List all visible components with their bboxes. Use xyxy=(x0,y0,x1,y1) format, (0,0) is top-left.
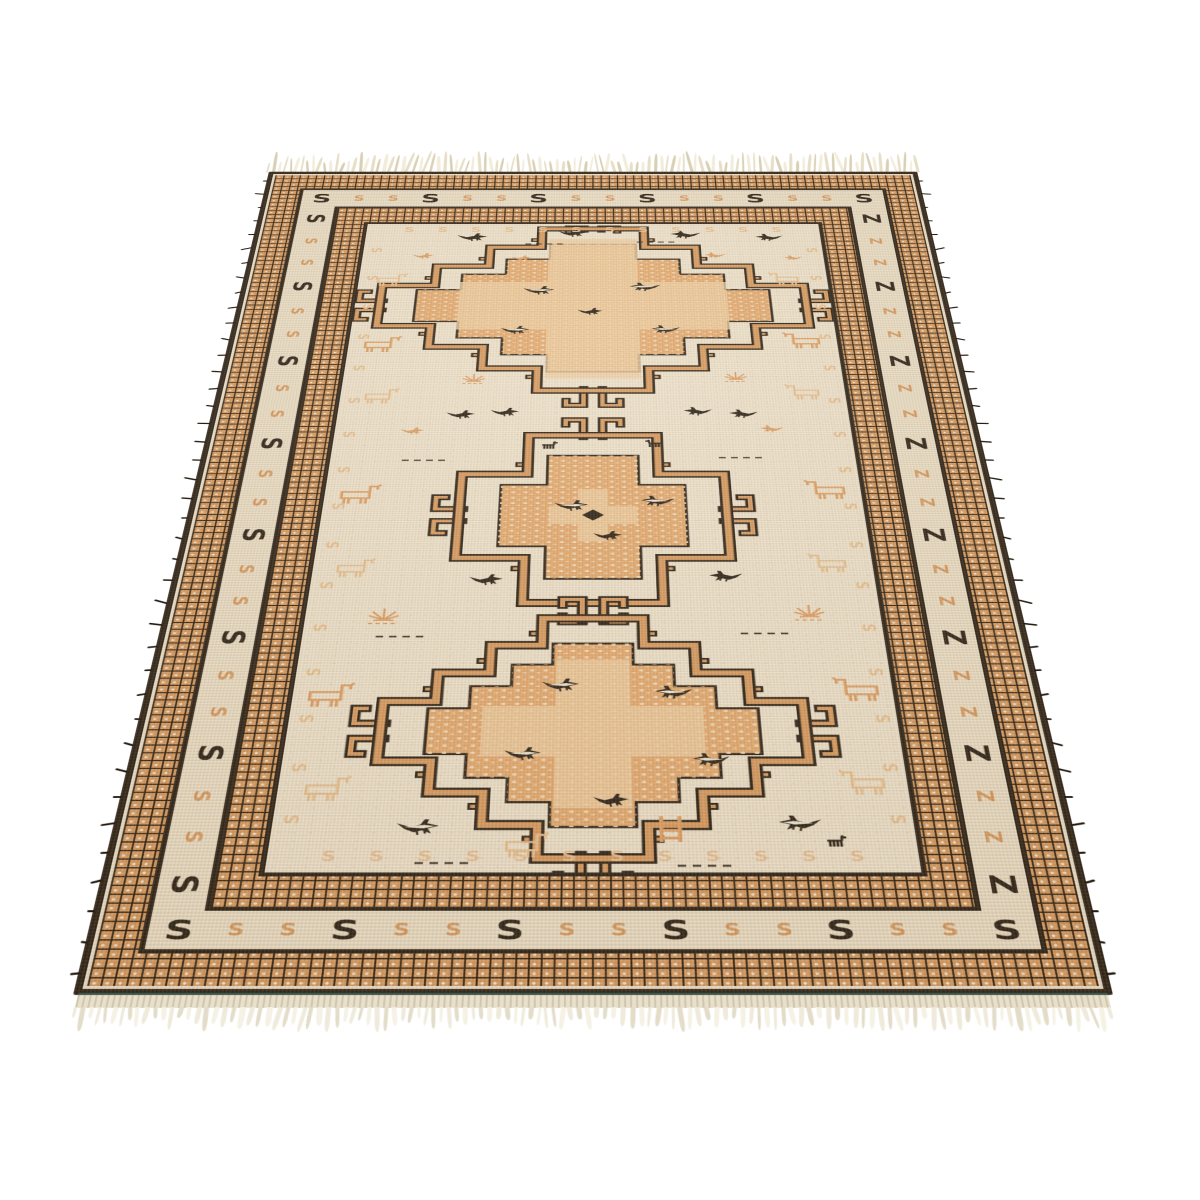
fringe-strand xyxy=(647,1007,652,1027)
s-motif-small: Z xyxy=(935,596,957,606)
fringe-strand xyxy=(903,152,906,173)
fringe-strand xyxy=(343,1007,349,1022)
fringe-strand xyxy=(814,153,817,172)
fringe-strand xyxy=(375,1007,380,1032)
fringe-strand xyxy=(407,1007,414,1024)
fringe-strand xyxy=(346,160,350,172)
bird-motif xyxy=(709,571,743,582)
fringe-strand xyxy=(365,1007,372,1026)
fringe-strand xyxy=(471,156,475,173)
fringe-strand xyxy=(479,1007,484,1020)
s-motif-large: S xyxy=(215,630,249,646)
fringe-strand xyxy=(1057,1007,1064,1019)
fringe-strand xyxy=(422,151,433,172)
fringe-strand xyxy=(1081,1007,1091,1022)
s-motif-small: Z xyxy=(981,831,1006,844)
s-motif-small: S xyxy=(206,706,229,717)
s-motif-large: S xyxy=(495,917,525,943)
fringe-strand xyxy=(712,154,716,172)
fringe-strand xyxy=(764,1007,771,1028)
fringe-strand xyxy=(471,1007,475,1020)
s-motif-small: S xyxy=(288,308,306,315)
fringe-strand xyxy=(358,1007,365,1021)
fringe-strand xyxy=(549,161,553,172)
fringe-strand xyxy=(913,155,920,172)
fringe-strand xyxy=(621,153,629,172)
fringe-strand xyxy=(255,1007,264,1027)
fringe-strand xyxy=(736,157,741,172)
horse-motif xyxy=(804,480,845,499)
rug-outer-edge: SSSSSSSSSSSSSSSS SSSSSSSSSSSSSSSS SSSSSS… xyxy=(73,172,1113,995)
s-motif-small: S xyxy=(888,921,907,938)
fringe-strand xyxy=(495,160,499,173)
fringe-strand xyxy=(654,154,658,173)
fringe-strand xyxy=(714,1007,720,1028)
fringe-strand xyxy=(537,1007,543,1025)
fringe-strand xyxy=(660,155,664,172)
s-motif-small: S xyxy=(267,410,286,418)
horse-motif xyxy=(365,388,400,403)
plant-motif xyxy=(724,372,747,382)
s-motif-large: S xyxy=(256,437,286,450)
horse-motif xyxy=(308,683,354,707)
fringe-strand xyxy=(589,156,594,172)
bird-motif xyxy=(704,253,726,259)
s-motif-small: Z xyxy=(885,331,903,338)
border-line-3: SSSSSSSSSSSS SSSSSSSSSSSS SSSSSSSSSSSSSS… xyxy=(258,222,928,876)
fringe-strand xyxy=(604,153,610,172)
fringe-strand xyxy=(437,156,441,173)
fringe-strand xyxy=(283,156,290,172)
bird-motif xyxy=(469,574,503,585)
fringe-strand xyxy=(538,156,542,172)
fringe-strand xyxy=(555,159,558,172)
fringe-strand xyxy=(514,1007,518,1024)
fringe-strand xyxy=(567,1007,574,1021)
fringe-strand xyxy=(774,156,783,172)
fringe-strand xyxy=(694,153,697,172)
fringe-strand xyxy=(683,153,685,172)
fringe-strand xyxy=(1066,1007,1073,1026)
rug-bottom-selvedge xyxy=(75,993,1111,1008)
horse-motif xyxy=(783,333,820,349)
s-motif-small: S xyxy=(679,195,690,202)
fringe-strand xyxy=(446,1007,451,1029)
fringe-strand xyxy=(186,1007,193,1020)
fringe-strand xyxy=(694,1007,702,1026)
s-motif-large: Z xyxy=(885,355,914,366)
fringe-strand xyxy=(496,1007,502,1019)
fringe-strand xyxy=(753,152,756,172)
fringe-strand xyxy=(488,156,494,172)
fringe-strand xyxy=(401,156,407,173)
fringe-strand xyxy=(561,161,565,172)
fringe-strand xyxy=(290,158,292,172)
fringe-strand xyxy=(335,1007,339,1028)
fringe-strand xyxy=(672,1007,675,1029)
bird-motif xyxy=(457,233,488,241)
fringe-strand xyxy=(685,151,694,172)
fringe-strand xyxy=(1000,1007,1003,1021)
s-motif-small: Z xyxy=(929,564,950,574)
fringe-strand xyxy=(370,155,376,172)
s-motif-small: Z xyxy=(880,308,898,315)
fringe-strand xyxy=(861,152,865,173)
fringe-strand xyxy=(796,161,800,173)
fringe-strand xyxy=(382,154,389,173)
fringe-strand xyxy=(913,1007,918,1028)
fringe-strand xyxy=(522,159,525,172)
s-motif-small: Z xyxy=(950,670,973,681)
bird-motif xyxy=(490,408,519,416)
fringe-strand xyxy=(845,1007,850,1025)
s-motif-small: S xyxy=(214,670,237,681)
s-motif-row-bottom: SSSSSSSSSSSSSSSS xyxy=(145,911,1042,949)
inner-chain-border: SSSSSSSSSSSS SSSSSSSSSSSS SSSSSSSSSSSSSS… xyxy=(211,208,975,906)
s-motif-small: Z xyxy=(867,238,884,244)
fringe-strand xyxy=(477,151,482,172)
fringe-strand xyxy=(109,1007,119,1024)
fringe-strand xyxy=(983,1007,990,1028)
bird-motif xyxy=(670,231,700,239)
s-motif-small: Z xyxy=(895,384,914,392)
fringe-strand xyxy=(229,1007,237,1022)
fringe-strand xyxy=(349,1007,358,1024)
fringe-strand xyxy=(905,1007,909,1025)
plant-motif xyxy=(462,374,485,384)
fringe-strand xyxy=(757,1007,761,1031)
fringe-strand xyxy=(417,1007,421,1019)
fringe-strand xyxy=(264,1007,272,1026)
fringe-strand xyxy=(630,1007,636,1028)
bird-motif xyxy=(778,816,822,831)
s-motif-small: S xyxy=(496,195,507,202)
s-motif-small: S xyxy=(605,195,616,202)
fringe-strand xyxy=(584,161,588,172)
fringe-strand xyxy=(1099,1007,1107,1031)
fringe-strand xyxy=(443,151,448,172)
s-motif-large: Z xyxy=(858,214,884,223)
fringe-strand xyxy=(88,1007,95,1019)
fringe-strand xyxy=(677,1007,686,1032)
rug-top-fringe xyxy=(266,150,920,173)
s-motif-small: Z xyxy=(973,790,997,802)
fringe-strand xyxy=(704,1007,712,1020)
fringe-strand xyxy=(305,1007,314,1030)
fringe-strand xyxy=(423,1007,430,1025)
fringe-strand xyxy=(312,155,315,173)
fringe-strand xyxy=(816,1007,822,1019)
fringe-strand xyxy=(176,1007,185,1018)
fringe-strand xyxy=(578,156,583,173)
fringe-strand xyxy=(897,154,902,172)
fringe-strand xyxy=(376,159,382,173)
fringe-strand xyxy=(510,156,516,172)
fringe-strand xyxy=(781,1007,787,1026)
s-motif-small: S xyxy=(392,921,410,938)
fringe-strand xyxy=(400,1007,405,1021)
fringe-strand xyxy=(429,153,437,173)
fringe-strand xyxy=(359,152,363,173)
fringe-strand xyxy=(306,160,309,172)
fringe-strand xyxy=(788,1007,797,1025)
border-line-1: SSSSSSSSSSSSSSSS SSSSSSSSSSSSSSSS SSSSSS… xyxy=(138,188,1048,953)
edge-fray-thread xyxy=(975,423,989,425)
s-motif-large: Z xyxy=(958,744,994,762)
fringe-strand xyxy=(412,155,420,173)
fringe-strand xyxy=(141,1007,152,1024)
fringe-strand xyxy=(647,156,651,173)
fringe-strand xyxy=(687,1007,692,1029)
fringe-strand xyxy=(432,1007,436,1029)
horse-motif xyxy=(364,336,401,352)
fringe-strand xyxy=(487,1007,492,1022)
fringe-strand xyxy=(1015,1007,1025,1031)
bird-motif xyxy=(755,234,783,241)
fringe-strand xyxy=(363,157,371,172)
s-motif-large: Z xyxy=(917,528,949,542)
fringe-strand xyxy=(818,154,823,173)
s-motif-large: Z xyxy=(900,437,930,450)
fringe-strand xyxy=(620,1007,626,1026)
fringe-strand xyxy=(594,1007,599,1018)
fringe-strand xyxy=(387,156,396,172)
fringe-strand xyxy=(161,1007,167,1020)
bird-motif xyxy=(784,255,803,260)
s-motif-large: S xyxy=(420,193,440,204)
s-motif-large: S xyxy=(853,193,874,204)
fringe-strand xyxy=(296,1007,307,1032)
fringe-strand xyxy=(574,157,577,172)
s-motif-small: S xyxy=(272,384,291,392)
s-motif-small: S xyxy=(249,498,269,507)
s-motif-large: S xyxy=(329,917,361,943)
fringe-strand xyxy=(405,152,416,172)
s-motif-small: S xyxy=(713,195,725,202)
s-motif-small: S xyxy=(353,195,365,202)
horse-motif xyxy=(785,385,820,400)
fringe-strand xyxy=(878,152,883,172)
fringe-strand xyxy=(910,160,913,172)
fringe-strand xyxy=(293,157,301,172)
fringe-strand xyxy=(824,152,831,173)
plant-motif xyxy=(368,609,399,624)
s-motif-border: SSSSSSSSSSSSSSSS SSSSSSSSSSSSSSSS SSSSSS… xyxy=(145,190,1042,949)
s-motif-small: S xyxy=(611,921,628,938)
bird-motif xyxy=(412,253,434,259)
fringe-strand xyxy=(663,1007,668,1025)
s-motif-large: S xyxy=(237,528,269,542)
fringe-strand xyxy=(844,157,847,173)
s-motif-large: S xyxy=(162,917,196,943)
fringe-strand xyxy=(193,1007,202,1024)
s-motif-small: S xyxy=(283,331,301,338)
fringe-strand xyxy=(748,1007,754,1024)
fringe-strand xyxy=(610,160,617,172)
s-motif-large: Z xyxy=(937,630,971,646)
fringe-strand xyxy=(789,153,792,172)
s-motif-large: S xyxy=(745,193,765,204)
fringe-strand xyxy=(865,153,873,173)
fringe-strand xyxy=(71,1007,77,1018)
fringe-strand xyxy=(931,1007,937,1031)
s-motif-small: Z xyxy=(957,706,980,717)
fringe-strand xyxy=(731,1007,736,1019)
s-motif-small: S xyxy=(255,469,275,477)
fringe-strand xyxy=(520,1007,526,1026)
fringe-strand xyxy=(598,154,605,172)
fringe-strand xyxy=(1006,1007,1014,1027)
fringe-strand xyxy=(611,1007,617,1019)
rug-bottom-fringe xyxy=(68,1007,1119,1035)
fringe-strand xyxy=(77,1007,86,1031)
fringe-strand xyxy=(835,1007,841,1020)
fringe-strand xyxy=(740,1007,745,1028)
fringe-strand xyxy=(826,1007,832,1029)
bird-motif xyxy=(396,819,440,834)
fringe-strand xyxy=(888,1007,893,1030)
s-motif-small: S xyxy=(229,596,251,606)
fringe-strand xyxy=(335,153,340,172)
s-motif-small: S xyxy=(181,831,206,844)
fringe-strand xyxy=(654,1007,661,1027)
outer-chain-border: SSSSSSSSSSSSSSSS SSSSSSSSSSSSSSSS SSSSSS… xyxy=(87,175,1099,986)
s-motif-small: S xyxy=(462,195,474,202)
rug: SSSSSSSSSSSSSSSS SSSSSSSSSSSSSSSS SSSSSS… xyxy=(73,172,1113,995)
fringe-strand xyxy=(394,155,401,173)
fringe-strand xyxy=(391,1007,397,1025)
fringe-strand xyxy=(219,1007,227,1027)
fringe-strand xyxy=(677,157,681,173)
fringe-strand xyxy=(762,156,771,172)
fringe-strand xyxy=(94,1007,102,1026)
fringe-strand xyxy=(458,158,466,173)
fringe-strand xyxy=(1041,1007,1050,1025)
fringe-strand xyxy=(454,159,458,172)
fringe-strand xyxy=(464,160,470,172)
fringe-strand xyxy=(1031,1007,1042,1025)
fringe-strand xyxy=(281,1007,290,1027)
fringe-strand xyxy=(449,154,453,172)
fringe-strand xyxy=(324,1007,332,1032)
fringe-strand xyxy=(128,1007,132,1020)
fringe-strand xyxy=(245,1007,255,1026)
s-motif-small: S xyxy=(940,921,960,938)
fringe-strand xyxy=(566,160,572,172)
s-motif-large: S xyxy=(288,281,315,291)
fringe-strand xyxy=(670,155,677,172)
s-motif-small: S xyxy=(723,921,741,938)
fringe-strand xyxy=(603,1007,608,1019)
s-motif-large: Z xyxy=(983,874,1022,894)
fringe-strand xyxy=(558,1007,565,1029)
fringe-strand xyxy=(439,1007,443,1022)
fringe-strand xyxy=(704,161,711,173)
fringe-strand xyxy=(506,162,509,173)
s-motif-large: S xyxy=(529,193,548,204)
rug-field: SSSSSSSSSSSS SSSSSSSSSSSS SSSSSSSSSSSSSS… xyxy=(265,224,922,872)
field-pattern xyxy=(265,224,922,872)
s-motif-large: S xyxy=(825,917,857,943)
fringe-strand xyxy=(463,1007,468,1025)
fringe-strand xyxy=(869,1007,875,1029)
fringe-strand xyxy=(271,1007,283,1030)
fringe-strand xyxy=(532,159,537,172)
s-motif-small: Z xyxy=(900,410,919,418)
s-motif-small: Z xyxy=(871,259,888,266)
s-motif-large: S xyxy=(990,917,1024,943)
fringe-strand xyxy=(783,162,788,173)
fringe-strand xyxy=(833,152,845,173)
horse-motif xyxy=(832,678,878,701)
bird-motif xyxy=(446,410,475,418)
fringe-strand xyxy=(504,1007,510,1021)
s-motif-large: S xyxy=(164,874,203,894)
fringe-strand xyxy=(889,156,898,173)
border-line-2: SSSSSSSSSSSS SSSSSSSSSSSS SSSSSSSSSSSSSS… xyxy=(205,207,982,911)
horse-motif xyxy=(340,485,381,504)
s-motif-small: S xyxy=(558,921,575,938)
s-motif-large: S xyxy=(273,355,302,366)
fringe-strand xyxy=(1024,1007,1032,1031)
fringe-strand xyxy=(118,1007,125,1026)
horse-motif xyxy=(305,776,351,801)
fringe-strand xyxy=(351,157,358,172)
s-motif-small: S xyxy=(775,921,793,938)
fringe-strand xyxy=(893,1007,905,1031)
s-motif-row-top: SSSSSSSSSSSSSSSS xyxy=(300,190,886,206)
fringe-strand xyxy=(799,1007,804,1027)
fringe-strand xyxy=(862,1007,865,1029)
fringe-strand xyxy=(290,1007,297,1025)
fringe-strand xyxy=(153,1007,157,1018)
fringe-strand xyxy=(665,155,670,173)
fringe-strand xyxy=(831,153,834,173)
fringe-strand xyxy=(806,1007,815,1026)
bird-motif xyxy=(683,407,712,415)
fringe-strand xyxy=(938,1007,946,1029)
fringe-strand xyxy=(723,1007,729,1020)
medallion-top xyxy=(343,228,844,406)
s-motif-small: S xyxy=(821,195,833,202)
s-motif-large: S xyxy=(191,744,227,762)
fringe-strand xyxy=(698,156,706,173)
medallion-middle xyxy=(425,420,762,622)
fringe-strand xyxy=(966,1007,972,1023)
s-motif-small: S xyxy=(570,195,581,202)
s-motif-large: S xyxy=(311,193,332,204)
s-motif-small: S xyxy=(189,790,213,802)
s-motif-small: S xyxy=(302,238,319,244)
fringe-strand xyxy=(947,1007,954,1025)
fringe-strand xyxy=(921,1007,928,1019)
fringe-strand xyxy=(499,158,505,173)
fringe-strand xyxy=(855,162,860,173)
fringe-strand xyxy=(551,1007,557,1027)
fringe-strand xyxy=(543,161,547,173)
fringe-strand xyxy=(210,1007,220,1024)
goat-motif xyxy=(827,835,848,846)
rug-outer-hairline: SSSSSSSSSSSSSSSS SSSSSSSSSSSSSSSS SSSSSS… xyxy=(82,174,1103,989)
s-motif-small: S xyxy=(235,564,256,573)
s-motif-small: S xyxy=(387,195,399,202)
fringe-strand xyxy=(878,1007,886,1031)
fringe-strand xyxy=(167,1007,175,1029)
fringe-strand xyxy=(973,1007,983,1026)
fringe-strand xyxy=(742,152,745,172)
horse-motif xyxy=(337,559,376,577)
fringe-strand xyxy=(526,153,531,172)
